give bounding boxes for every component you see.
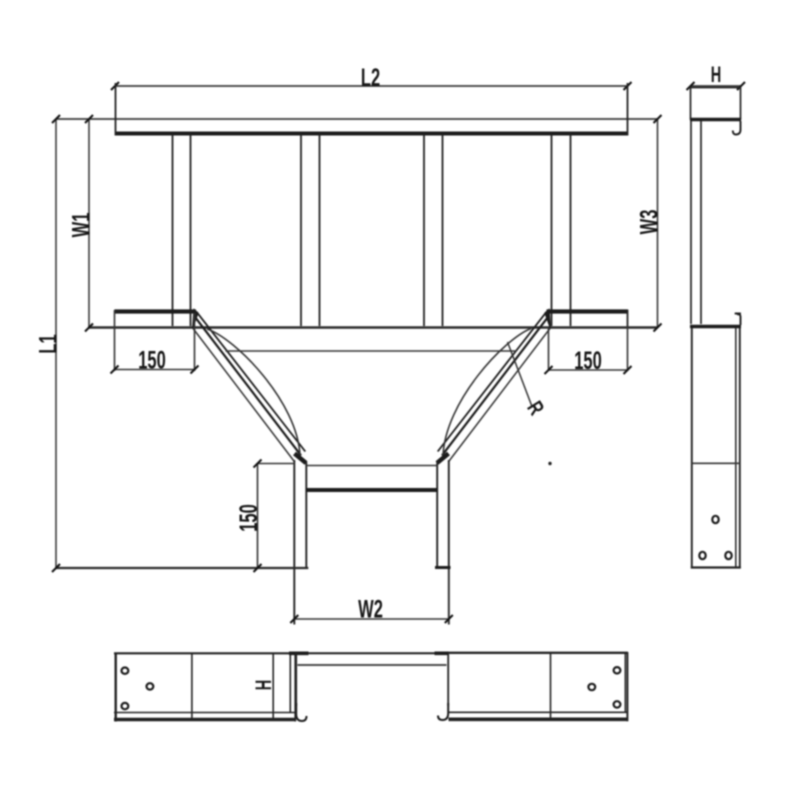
svg-text:L1: L1 bbox=[35, 334, 62, 353]
svg-text:W2: W2 bbox=[358, 596, 383, 623]
svg-text:W1: W1 bbox=[68, 212, 95, 237]
svg-text:H: H bbox=[711, 62, 721, 87]
svg-text:150: 150 bbox=[236, 504, 263, 532]
svg-text:150: 150 bbox=[574, 348, 602, 375]
svg-text:W3: W3 bbox=[636, 209, 663, 234]
svg-text:L2: L2 bbox=[361, 65, 380, 92]
svg-text:H: H bbox=[251, 680, 276, 690]
svg-text:150: 150 bbox=[138, 347, 166, 374]
